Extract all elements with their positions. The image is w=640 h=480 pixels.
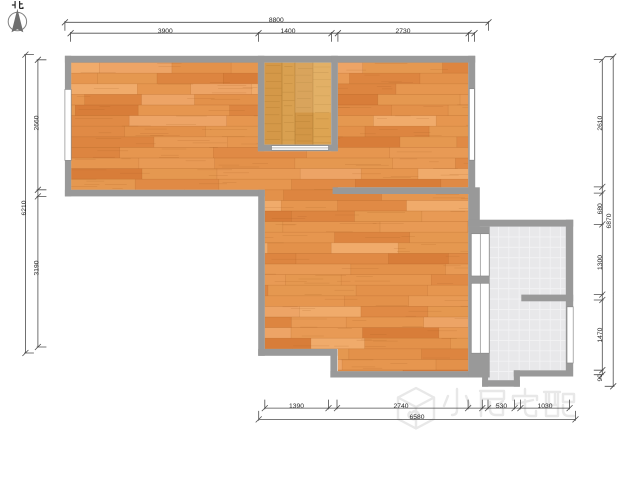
svg-text:1030: 1030 xyxy=(538,403,553,410)
svg-text:6870: 6870 xyxy=(606,213,613,228)
svg-text:90: 90 xyxy=(597,374,604,382)
svg-text:1400: 1400 xyxy=(281,28,296,35)
svg-text:2610: 2610 xyxy=(597,115,604,130)
svg-text:8800: 8800 xyxy=(269,17,284,24)
svg-text:680: 680 xyxy=(597,203,604,214)
svg-text:2740: 2740 xyxy=(394,403,409,410)
svg-text:6210: 6210 xyxy=(21,200,28,215)
svg-text:3900: 3900 xyxy=(158,28,173,35)
svg-text:2730: 2730 xyxy=(396,28,411,35)
svg-text:6580: 6580 xyxy=(410,414,425,421)
svg-text:3190: 3190 xyxy=(34,260,41,275)
svg-text:530: 530 xyxy=(496,403,507,410)
svg-text:1300: 1300 xyxy=(597,255,604,270)
svg-text:1390: 1390 xyxy=(289,403,304,410)
svg-text:2660: 2660 xyxy=(34,115,41,130)
svg-text:1470: 1470 xyxy=(597,327,604,342)
